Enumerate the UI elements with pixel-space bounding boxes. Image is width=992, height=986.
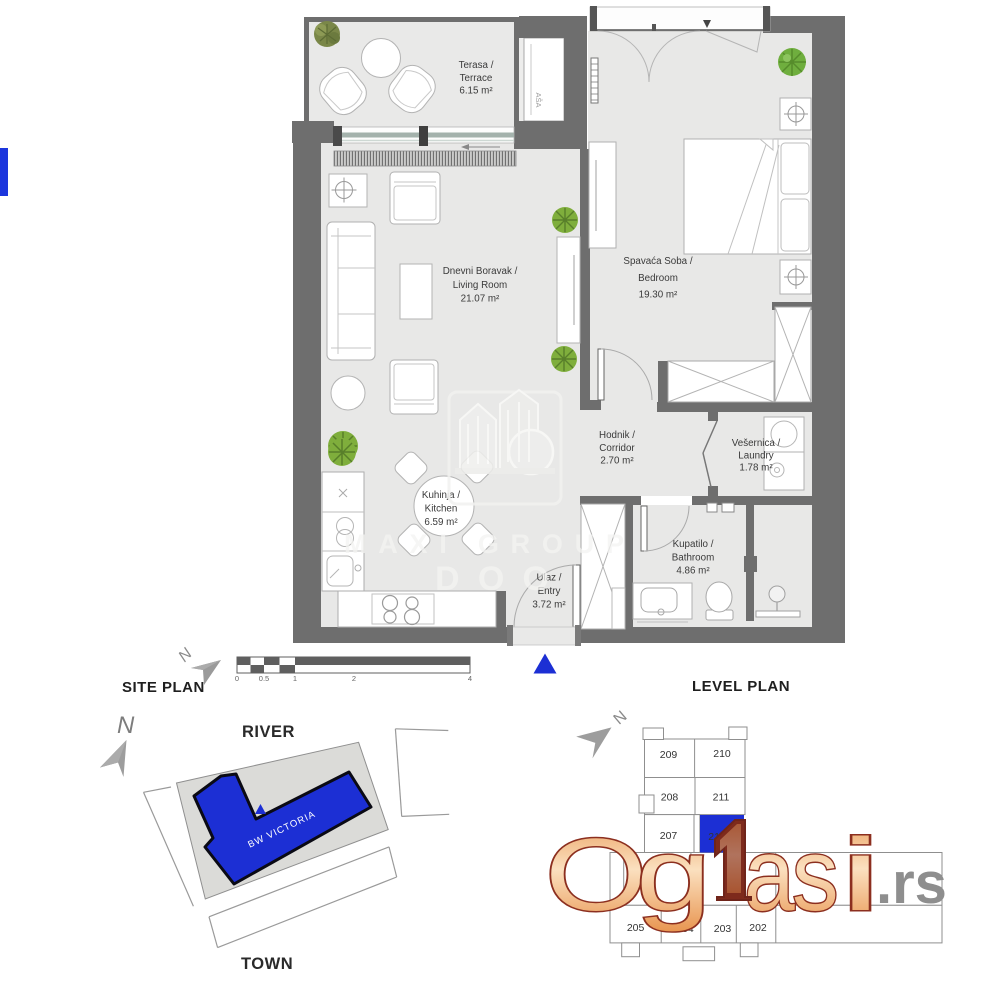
svg-text:.rs: .rs <box>876 851 947 916</box>
svg-text:g: g <box>636 818 711 932</box>
svg-text:210: 210 <box>713 748 731 760</box>
svg-text:Corridor: Corridor <box>599 443 635 454</box>
svg-text:Terasa /: Terasa / <box>459 60 494 71</box>
svg-text:Bathroom: Bathroom <box>672 553 714 564</box>
svg-text:211: 211 <box>713 792 730 804</box>
svg-text:Terrace: Terrace <box>460 73 493 84</box>
svg-text:0: 0 <box>235 674 239 683</box>
svg-text:Kitchen: Kitchen <box>425 504 458 515</box>
svg-text:RIVER: RIVER <box>242 723 295 741</box>
svg-text:a: a <box>744 817 796 932</box>
svg-text:203: 203 <box>714 923 732 935</box>
svg-text:Living Room: Living Room <box>453 280 507 291</box>
svg-text:Bedroom: Bedroom <box>638 273 678 284</box>
svg-text:4.86 m²: 4.86 m² <box>676 566 710 577</box>
svg-text:SITE PLAN: SITE PLAN <box>122 679 205 696</box>
svg-text:4: 4 <box>468 674 472 683</box>
svg-text:208: 208 <box>661 792 679 804</box>
svg-text:TOWN: TOWN <box>241 955 293 973</box>
svg-text:Vešernica /: Vešernica / <box>732 438 781 449</box>
svg-text:19.30 m²: 19.30 m² <box>639 290 678 301</box>
svg-text:Kupatilo /: Kupatilo / <box>673 539 714 550</box>
svg-text:1.78 m²: 1.78 m² <box>739 463 773 474</box>
svg-text:1: 1 <box>293 674 297 683</box>
svg-text:N: N <box>117 712 135 739</box>
svg-text:MAXI GROUP: MAXI GROUP <box>344 529 630 559</box>
svg-text:s: s <box>792 817 839 932</box>
svg-text:N: N <box>175 645 196 666</box>
svg-text:LEVEL PLAN: LEVEL PLAN <box>692 678 790 695</box>
svg-text:N: N <box>611 708 631 728</box>
svg-text:6.59 m²: 6.59 m² <box>424 517 458 528</box>
svg-text:Spavaća Soba /: Spavaća Soba / <box>623 256 692 267</box>
svg-text:3.72 m²: 3.72 m² <box>532 600 566 611</box>
svg-text:2.70 m²: 2.70 m² <box>600 456 634 467</box>
svg-text:21.07 m²: 21.07 m² <box>461 294 500 305</box>
svg-text:2: 2 <box>352 674 356 683</box>
svg-text:Kuhinja /: Kuhinja / <box>422 490 460 501</box>
svg-text:O: O <box>545 818 647 933</box>
svg-text:209: 209 <box>660 749 678 761</box>
svg-text:Hodnik /: Hodnik / <box>599 430 635 441</box>
svg-text:AŠA: AŠA <box>534 92 543 107</box>
svg-text:Laundry: Laundry <box>738 451 774 462</box>
svg-text:Dnevni Boravak /: Dnevni Boravak / <box>443 266 518 277</box>
svg-text:DOO: DOO <box>435 560 559 598</box>
svg-text:6.15 m²: 6.15 m² <box>459 86 493 97</box>
svg-text:0.5: 0.5 <box>259 674 269 683</box>
